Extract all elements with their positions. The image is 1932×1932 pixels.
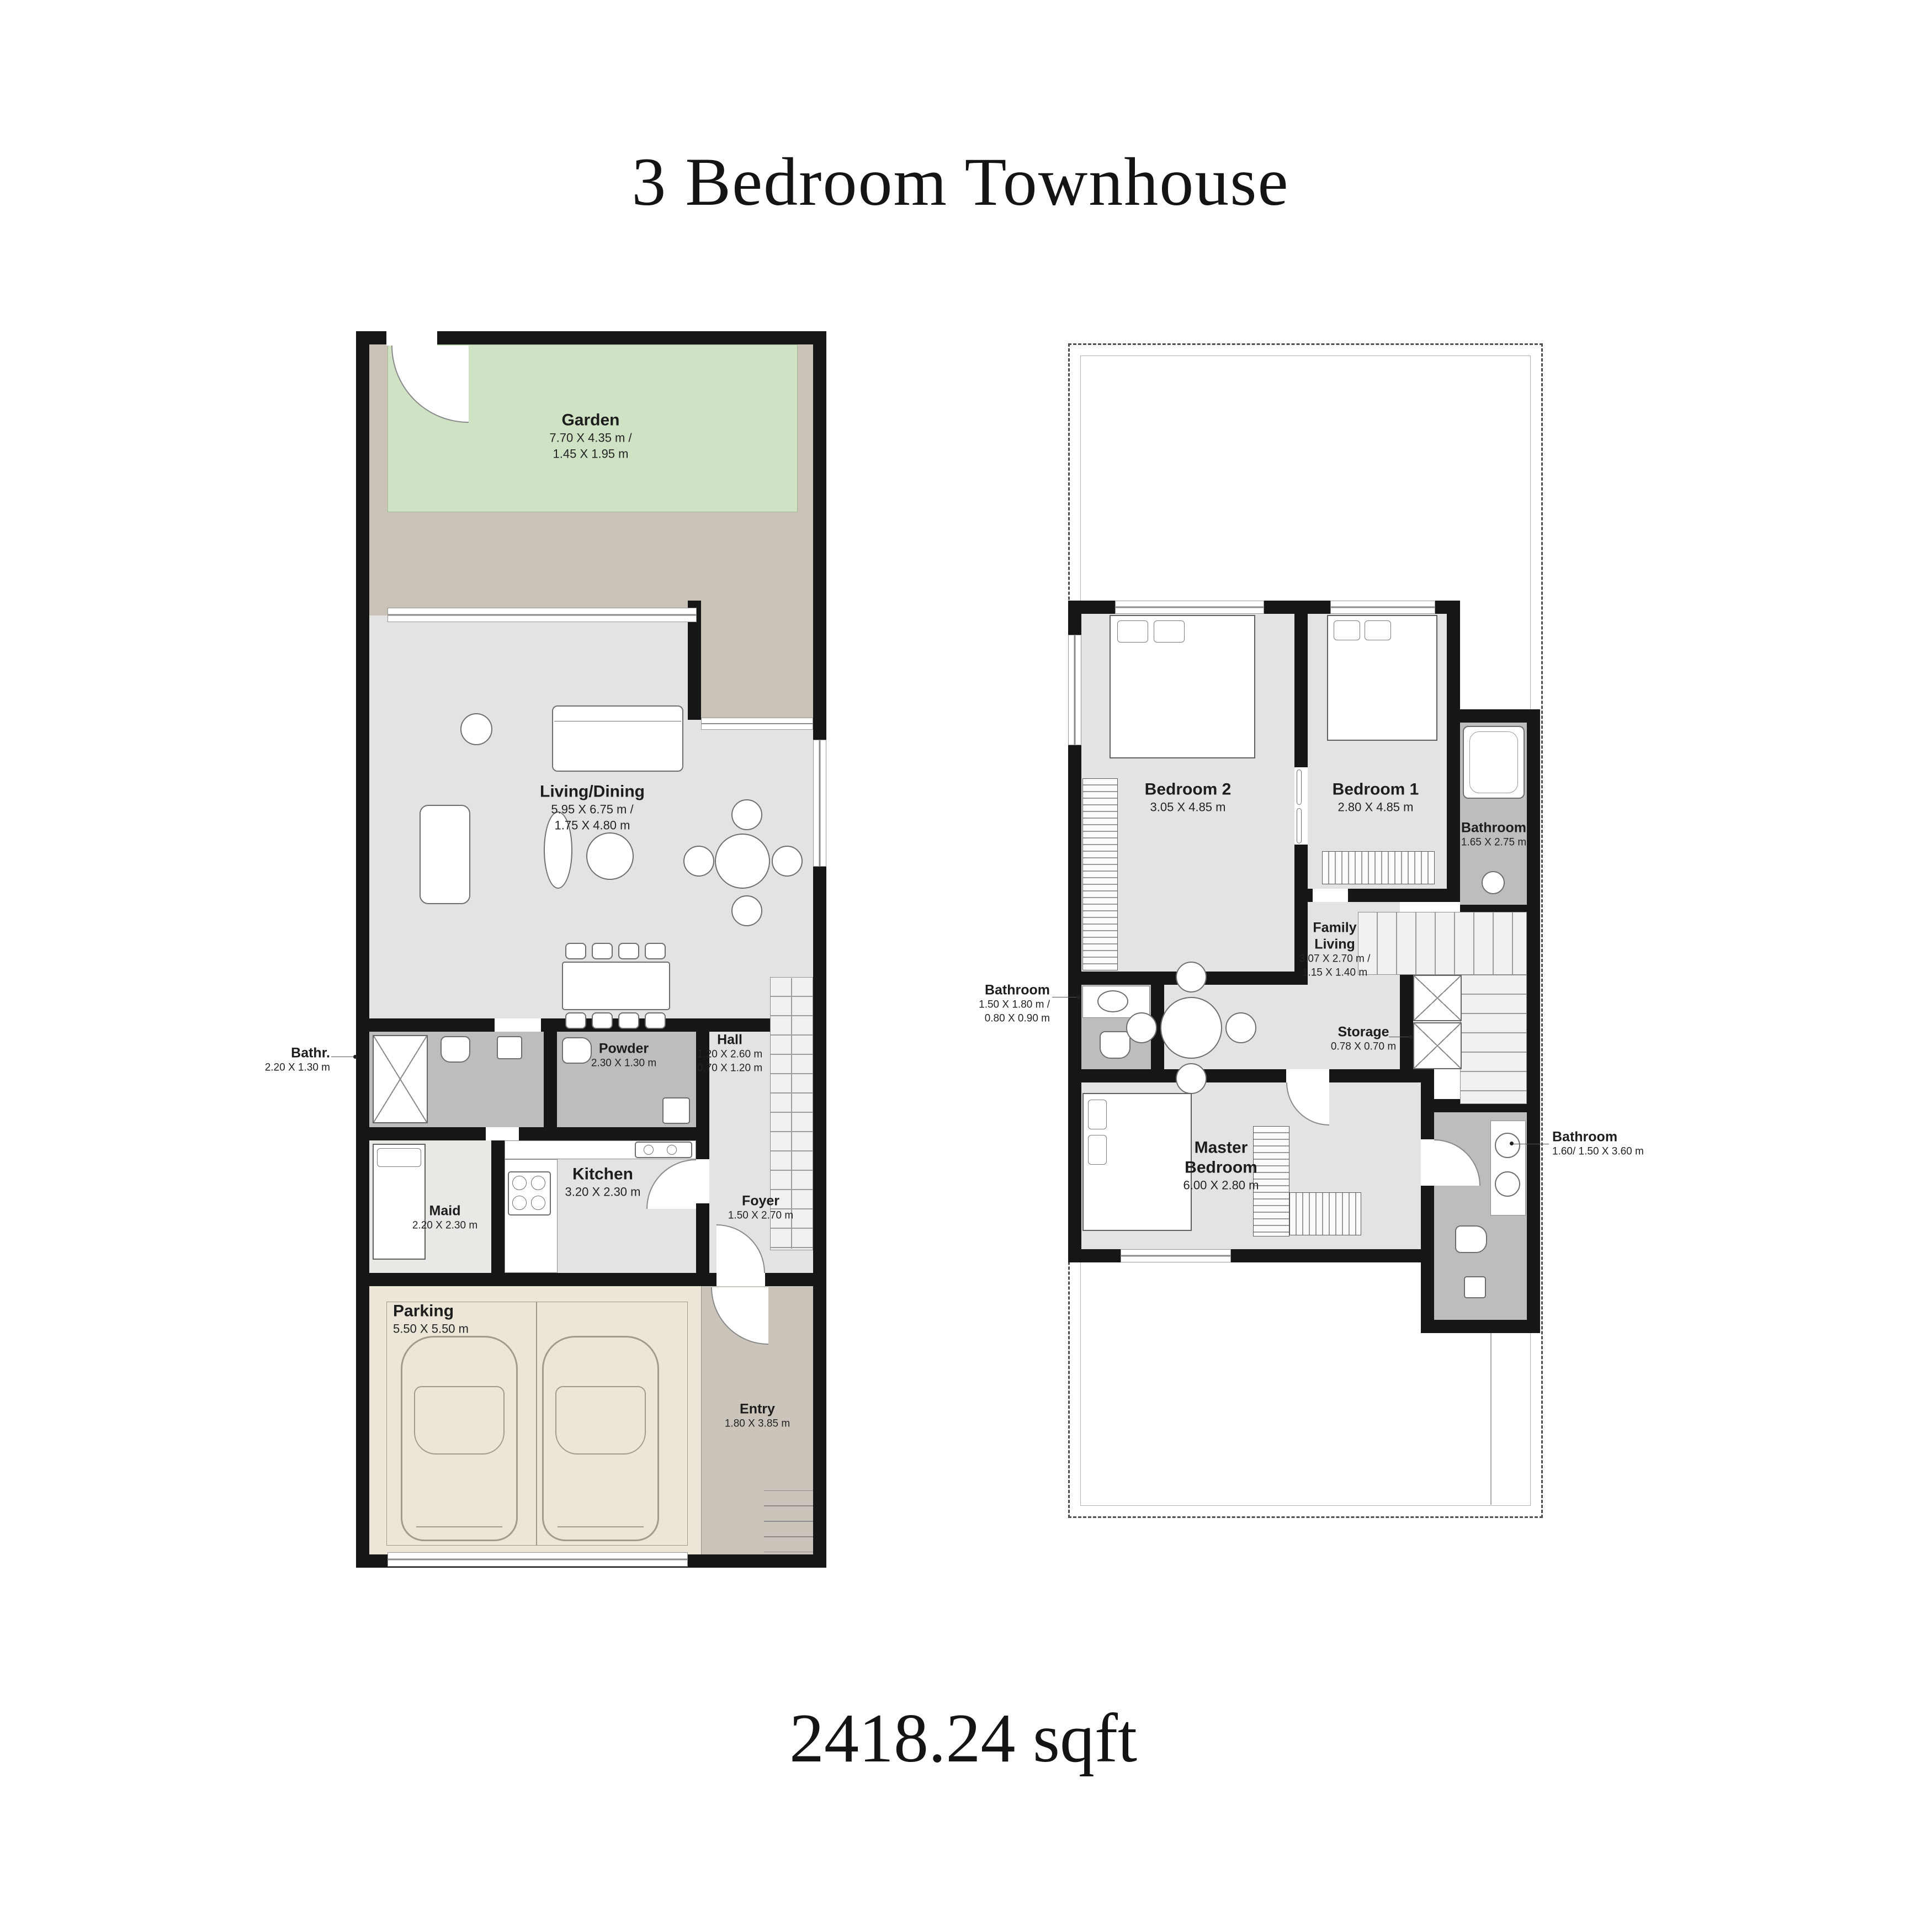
room-label-family-living: Family Living 3.07 X 2.70 m / 1.15 X 1.4… bbox=[1299, 919, 1371, 979]
chair bbox=[731, 799, 762, 830]
sink-basin bbox=[644, 1145, 654, 1155]
door-opening bbox=[696, 1159, 709, 1203]
dining-chair bbox=[592, 1012, 613, 1029]
toilet bbox=[1455, 1225, 1487, 1253]
chair bbox=[731, 895, 762, 926]
wardrobe bbox=[1322, 851, 1435, 884]
burner bbox=[512, 1176, 527, 1190]
window bbox=[813, 740, 826, 867]
dining-chair bbox=[565, 943, 586, 959]
dining-table bbox=[562, 962, 670, 1010]
sofa bbox=[552, 705, 683, 772]
pillow bbox=[1088, 1100, 1107, 1129]
window bbox=[1115, 601, 1264, 614]
room-label-bathroom-top: Bathroom 1.65 X 2.75 m bbox=[1461, 820, 1526, 850]
room-label-maid: Maid 2.20 X 2.30 m bbox=[412, 1203, 477, 1233]
wall bbox=[369, 1127, 696, 1140]
room-label-kitchen: Kitchen 3.20 X 2.30 m bbox=[565, 1165, 641, 1201]
room-label-powder: Powder 2.30 X 1.30 m bbox=[591, 1041, 656, 1071]
car-roof bbox=[414, 1386, 505, 1455]
sink bbox=[662, 1097, 690, 1124]
room-label-master-bedroom: Master Bedroom 6.00 X 2.80 m bbox=[1183, 1138, 1259, 1194]
room-label-storage: Storage 0.78 X 0.70 m bbox=[1331, 1024, 1396, 1054]
sofa-back-line bbox=[554, 721, 681, 721]
leader-line bbox=[331, 1057, 356, 1057]
round-table bbox=[1160, 997, 1222, 1059]
coffee-table bbox=[586, 832, 634, 880]
room-label-foyer: Foyer 1.50 X 2.70 m bbox=[728, 1193, 793, 1223]
room-label-bedroom1: Bedroom 1 2.80 X 4.85 m bbox=[1333, 780, 1419, 816]
car-roof bbox=[555, 1386, 646, 1455]
chair bbox=[772, 846, 803, 877]
wall bbox=[1460, 905, 1527, 912]
shower bbox=[373, 1035, 428, 1123]
storage-closet bbox=[1413, 975, 1462, 1021]
dining-chair bbox=[565, 1012, 586, 1029]
pillow bbox=[1088, 1135, 1107, 1165]
wall bbox=[1421, 1069, 1434, 1333]
car bbox=[401, 1336, 518, 1541]
room-label-parking: Parking 5.50 X 5.50 m bbox=[393, 1302, 469, 1337]
side-table bbox=[460, 713, 492, 745]
patio-window bbox=[388, 608, 697, 622]
bathtub-inner bbox=[1469, 731, 1518, 793]
wall bbox=[1081, 1069, 1434, 1082]
dining-chair bbox=[645, 1012, 666, 1029]
room-label-living-dining: Living/Dining 5.95 X 6.75 m / 1.75 X 4.8… bbox=[540, 782, 645, 833]
burner bbox=[531, 1176, 545, 1190]
terrace-notch bbox=[701, 615, 813, 720]
garage-door bbox=[388, 1552, 688, 1567]
leader-dot bbox=[1076, 995, 1080, 999]
window bbox=[1068, 635, 1081, 745]
dining-chair bbox=[618, 1012, 639, 1029]
sink bbox=[497, 1036, 522, 1059]
door-leaf bbox=[1297, 769, 1302, 805]
room-label-entry: Entry 1.80 X 3.85 m bbox=[725, 1401, 790, 1431]
wall bbox=[491, 1140, 505, 1273]
room-label-bathroom-left: Bathroom 1.50 X 1.80 m / 0.80 X 0.90 m bbox=[979, 981, 1050, 1025]
toilet bbox=[440, 1036, 470, 1063]
door-leaf bbox=[1297, 808, 1302, 843]
round-table bbox=[715, 834, 770, 889]
chair bbox=[1126, 1012, 1157, 1043]
pillow bbox=[1154, 620, 1185, 643]
room-label-hall: Hall 1.20 X 2.60 m 0.70 X 1.20 m bbox=[697, 1031, 762, 1075]
room-label-bathr: Bathr. 2.20 X 1.30 m bbox=[265, 1045, 330, 1075]
car bbox=[542, 1336, 659, 1541]
room-label-bathroom-bottom: Bathroom 1.60/ 1.50 X 3.60 m bbox=[1552, 1129, 1644, 1159]
dining-chair bbox=[592, 943, 613, 959]
toilet bbox=[1100, 1031, 1130, 1059]
toilet bbox=[562, 1037, 592, 1064]
leader-dot bbox=[1409, 1035, 1413, 1039]
chair bbox=[1176, 962, 1207, 992]
door-opening bbox=[486, 1127, 519, 1140]
wardrobe bbox=[1082, 778, 1118, 970]
wall bbox=[369, 1018, 813, 1032]
sink bbox=[1495, 1171, 1520, 1197]
bidet bbox=[1464, 1276, 1486, 1298]
door-opening bbox=[1286, 1069, 1329, 1082]
wall bbox=[1527, 709, 1540, 1333]
wall bbox=[1447, 601, 1460, 902]
leader-line bbox=[1389, 1037, 1411, 1037]
sink-basin bbox=[667, 1145, 677, 1155]
room-label-garden: Garden 7.70 X 4.35 m / 1.45 X 1.95 m bbox=[549, 410, 631, 461]
room-label-bedroom2: Bedroom 2 3.05 X 4.85 m bbox=[1145, 780, 1232, 816]
floor-plan-page: 3 Bedroom Townhouse bbox=[0, 0, 1932, 1932]
armchair bbox=[420, 805, 470, 904]
door-opening bbox=[1313, 889, 1348, 902]
leader-dot bbox=[353, 1055, 357, 1059]
chair bbox=[1225, 1012, 1256, 1043]
staircase-upper-flight bbox=[1358, 912, 1527, 975]
pillow bbox=[1365, 620, 1391, 640]
wall bbox=[544, 1032, 557, 1127]
sink bbox=[1097, 990, 1128, 1012]
burner bbox=[512, 1196, 527, 1210]
pillow bbox=[1117, 620, 1148, 643]
sink bbox=[1495, 1133, 1520, 1158]
entry-steps bbox=[764, 1490, 813, 1552]
door-opening bbox=[1421, 1139, 1434, 1186]
leader-line bbox=[1052, 997, 1080, 997]
burner bbox=[531, 1196, 545, 1210]
chair bbox=[1176, 1063, 1207, 1094]
front-door-opening bbox=[716, 1273, 765, 1286]
car-tail-line bbox=[416, 1526, 503, 1527]
dining-chair bbox=[618, 943, 639, 959]
car-tail-line bbox=[558, 1526, 644, 1527]
building-edge-line bbox=[1490, 1333, 1492, 1505]
wardrobe bbox=[1289, 1192, 1361, 1235]
sink bbox=[1482, 871, 1505, 894]
chair bbox=[683, 846, 714, 877]
leader-line bbox=[1512, 1144, 1549, 1144]
dining-chair bbox=[645, 943, 666, 959]
stall-divider bbox=[536, 1302, 537, 1546]
garden-door-opening bbox=[386, 330, 437, 346]
window bbox=[1330, 601, 1435, 614]
total-area: 2418.24 sqft bbox=[789, 1699, 1137, 1779]
wall bbox=[1421, 1320, 1540, 1333]
storage-closet bbox=[1413, 1022, 1462, 1069]
pillow bbox=[377, 1148, 421, 1167]
door-opening bbox=[495, 1018, 541, 1032]
staircase-lower-flight bbox=[1460, 975, 1527, 1104]
leader-dot bbox=[1510, 1142, 1514, 1145]
page-title: 3 Bedroom Townhouse bbox=[631, 143, 1289, 221]
window bbox=[1121, 1249, 1231, 1262]
pillow bbox=[1334, 620, 1360, 640]
wall bbox=[1400, 975, 1413, 1069]
window bbox=[701, 718, 813, 730]
